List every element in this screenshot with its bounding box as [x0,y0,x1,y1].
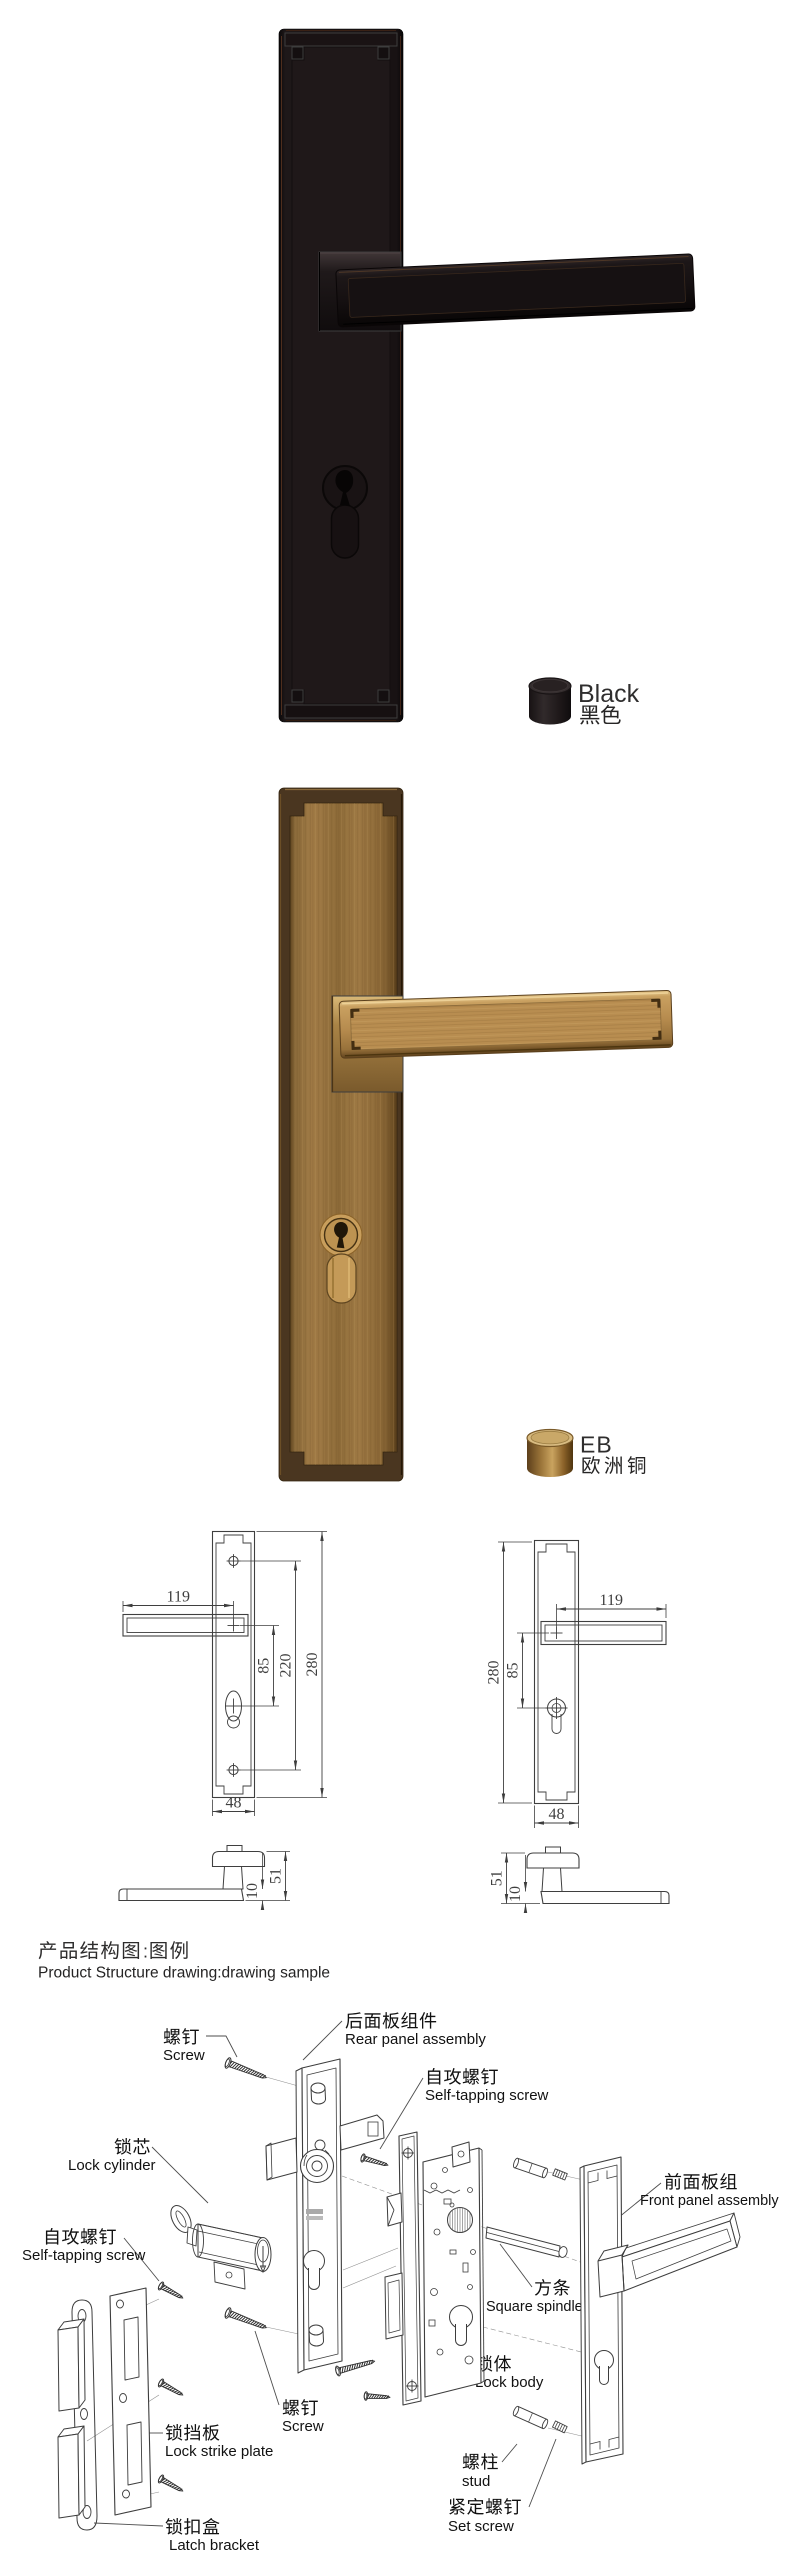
svg-text:220: 220 [278,1654,295,1678]
svg-text:Latch bracket: Latch bracket [169,2537,260,2554]
svg-text:Self-tapping screw: Self-tapping screw [22,2247,146,2264]
svg-text:Square spindle: Square spindle [486,2299,583,2315]
svg-text:Self-tapping screw: Self-tapping screw [425,2087,549,2104]
svg-text:51: 51 [268,1868,285,1884]
svg-text:280: 280 [486,1661,503,1685]
svg-text:10: 10 [507,1886,524,1902]
svg-text:Set screw: Set screw [448,2518,514,2535]
svg-text:EB: EB [580,1432,613,1458]
svg-text:Lock cylinder: Lock cylinder [68,2157,156,2174]
svg-text:Screw: Screw [163,2047,205,2064]
svg-text:280: 280 [304,1653,321,1677]
svg-text:48: 48 [226,1795,242,1812]
svg-text:Product Structure drawing:draw: Product Structure drawing:drawing sample [38,1965,330,1982]
svg-text:Lock body: Lock body [475,2374,544,2391]
svg-text:10: 10 [244,1883,261,1899]
svg-text:Screw: Screw [282,2418,324,2435]
svg-text:Front panel assembly: Front panel assembly [640,2193,779,2209]
svg-text:119: 119 [600,1592,623,1609]
svg-text:Rear panel assembly: Rear panel assembly [345,2031,486,2048]
svg-text:51: 51 [489,1870,506,1886]
svg-text:stud: stud [462,2473,490,2490]
svg-text:48: 48 [549,1806,565,1823]
svg-text:85: 85 [505,1663,522,1679]
svg-text::: : [143,1942,148,1962]
svg-text:Black: Black [578,680,640,708]
svg-text:85: 85 [256,1658,273,1674]
svg-text:Lock strike plate: Lock strike plate [165,2443,273,2460]
svg-text:119: 119 [167,1589,190,1606]
